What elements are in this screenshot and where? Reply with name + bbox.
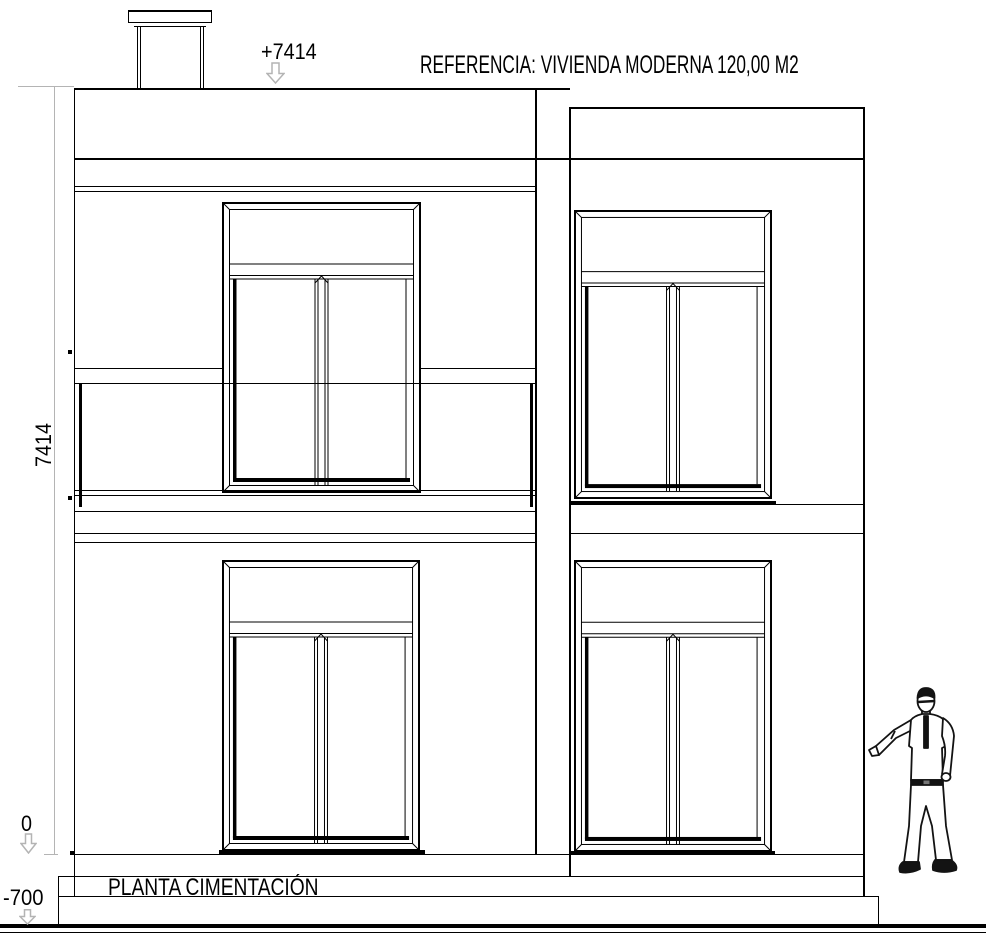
level-tick-2 xyxy=(68,496,72,500)
fascia-band-line xyxy=(74,158,864,160)
ground-line-thin xyxy=(0,932,986,933)
roof-edge-left xyxy=(74,88,570,90)
human-figure xyxy=(866,686,968,882)
floor-line-left-a xyxy=(74,533,535,534)
chimney-cap-top xyxy=(128,10,212,12)
balcony-rail-bottom-a xyxy=(74,490,535,491)
window-upper-right xyxy=(574,210,772,499)
volume-junction-line-a xyxy=(535,88,537,854)
window-lower-left xyxy=(222,560,420,851)
window-lower-right xyxy=(574,560,772,852)
balcony-post-right xyxy=(530,383,533,507)
dimension-extension-bottom xyxy=(44,854,58,855)
balcony-rail-top xyxy=(74,383,535,384)
chimney-cap-inner xyxy=(134,26,206,27)
chimney-cap-base xyxy=(128,22,212,23)
plinth-left-edge xyxy=(58,876,59,925)
chimney-wall-right-outer xyxy=(203,26,204,88)
chimney-wall-left-outer xyxy=(137,26,138,88)
floor-line-right xyxy=(569,533,863,534)
foundation-plan-label: PLANTA CIMENTACIÓN xyxy=(108,876,319,900)
balcony-rail-bottom-b xyxy=(74,495,535,496)
drawing-title: REFERENCIA: VIVIENDA MODERNA 120,00 M2 xyxy=(420,53,799,78)
balcony-slab-line xyxy=(74,511,535,512)
plinth-right-edge xyxy=(878,896,879,925)
floor-slab-edge-1 xyxy=(74,186,536,187)
ground-level-label: 0 xyxy=(21,813,32,835)
height-dimension-label: 7414 xyxy=(33,413,55,478)
floor-slab-edge-2 xyxy=(74,191,536,192)
ground-line-thick xyxy=(0,924,986,928)
roof-level-label: +7414 xyxy=(261,41,317,63)
chimney-wall-right-inner xyxy=(200,26,201,88)
chimney-wall-left-inner xyxy=(140,26,141,88)
elevation-drawing: REFERENCIA: VIVIENDA MODERNA 120,00 M2 +… xyxy=(0,0,986,948)
foundation-level-label: -700 xyxy=(3,887,44,909)
dimension-extension-top xyxy=(18,86,74,87)
roof-level-down-arrow-icon xyxy=(266,62,285,84)
balcony-post-left xyxy=(79,383,82,507)
window-sill-thick-upper-right xyxy=(570,501,776,505)
ground-level-down-arrow-icon xyxy=(20,833,37,854)
level-tick-1 xyxy=(68,350,72,354)
right-wall xyxy=(863,107,865,896)
chimney-cap-side-left xyxy=(128,10,129,23)
foundation-level-down-arrow-icon xyxy=(19,909,36,925)
chimney-cap-side-right xyxy=(211,10,212,23)
floor-line-left-b xyxy=(74,542,535,543)
level-tick-3 xyxy=(70,851,74,855)
volume-junction-line-b xyxy=(569,107,571,876)
roof-edge-right xyxy=(569,107,864,109)
window-upper-left xyxy=(222,202,421,493)
left-wall xyxy=(74,88,75,897)
